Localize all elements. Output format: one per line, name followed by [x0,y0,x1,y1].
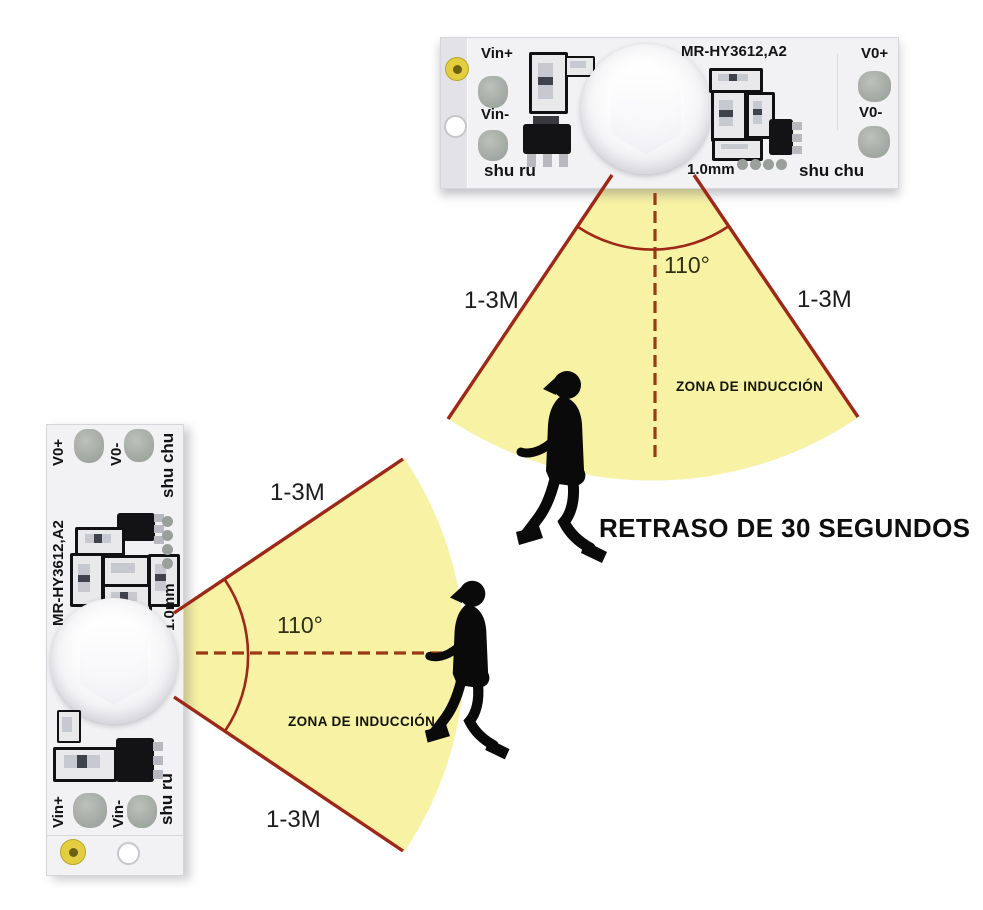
pin-label-vin-plus: Vin+ [51,796,66,828]
board-divider-line [837,54,838,130]
pir-dome-lens [581,44,711,174]
solder-pad [124,429,154,462]
mounting-hole-icon [445,57,469,81]
resistor [570,61,586,68]
silkscreen-box [75,527,125,556]
pitch-label: 1.0mm [687,162,735,177]
pin-label-vout-minus: V0- [109,443,124,466]
mounting-hole-icon [117,842,140,865]
pin-label-vout-plus: V0+ [51,439,66,466]
resistor [78,564,90,592]
model-number-label: MR-HY3612,A2 [681,44,787,59]
left-fan-range-top-label: 1-3M [270,479,325,507]
resistor [753,101,762,124]
pin-label-vin-minus: Vin- [481,107,509,122]
model-number-label: MR-HY3612,A2 [51,520,66,626]
silkscreen-box [57,710,81,743]
solder-pad [74,429,104,463]
output-label: shu chu [799,162,864,179]
top-fan-range-right-label: 1-3M [797,286,852,314]
board-divider-line [47,835,183,836]
delay-caption: RETRASO DE 30 SEGUNDOS [599,513,970,544]
top-fan-range-left-label: 1-3M [464,287,519,315]
input-label: shu ru [484,162,536,179]
pir-dome-lens [51,598,177,724]
pir-module-board-horizontal: Vin+ Vin- MR-HY3612,A2 [440,37,899,189]
left-fan-zone-label: ZONA DE INDUCCIÓN [288,714,435,729]
solder-pad [73,793,107,828]
resistor [64,755,100,768]
mounting-hole-icon [444,115,467,138]
solder-dot-row [737,159,791,171]
transistor [769,115,803,161]
solder-pad [858,71,891,102]
top-fan-angle-label: 110° [664,252,710,279]
solder-dot-column [162,516,174,572]
pir-module-board-vertical: V0+ V0- shu chu MR-HY3612,A2 [46,424,184,876]
pin-label-vout-minus: V0- [859,105,882,120]
silkscreen-box [53,747,117,782]
pir-sensor-infographic: Vin+ Vin- MR-HY3612,A2 [0,0,983,910]
resistor [718,74,748,81]
pin-label-vout-plus: V0+ [861,46,888,61]
resistor [111,563,135,573]
pin-label-vin-minus: Vin- [111,800,126,828]
resistor [62,717,72,732]
solder-pad [127,795,157,828]
silkscreen-box [529,52,568,114]
mounting-hole-icon [60,839,86,865]
resistor [85,534,111,543]
fresnel-facet [611,61,681,155]
silkscreen-box [712,138,763,161]
silkscreen-box [711,90,747,142]
pin-label-vin-plus: Vin+ [481,46,513,61]
silkscreen-box [102,555,150,587]
left-fan-range-bottom-label: 1-3M [266,806,321,834]
resistor [721,144,748,149]
fresnel-facet [80,614,148,705]
solder-pad [478,76,508,108]
output-label: shu chu [159,433,176,498]
solder-pad [478,130,508,161]
left-fan-angle-label: 110° [277,612,323,639]
solder-pad [858,126,890,158]
resistor [538,63,553,99]
resistor [719,100,733,126]
input-label: shu ru [158,773,175,825]
top-fan-zone-label: ZONA DE INDUCCIÓN [676,379,823,394]
